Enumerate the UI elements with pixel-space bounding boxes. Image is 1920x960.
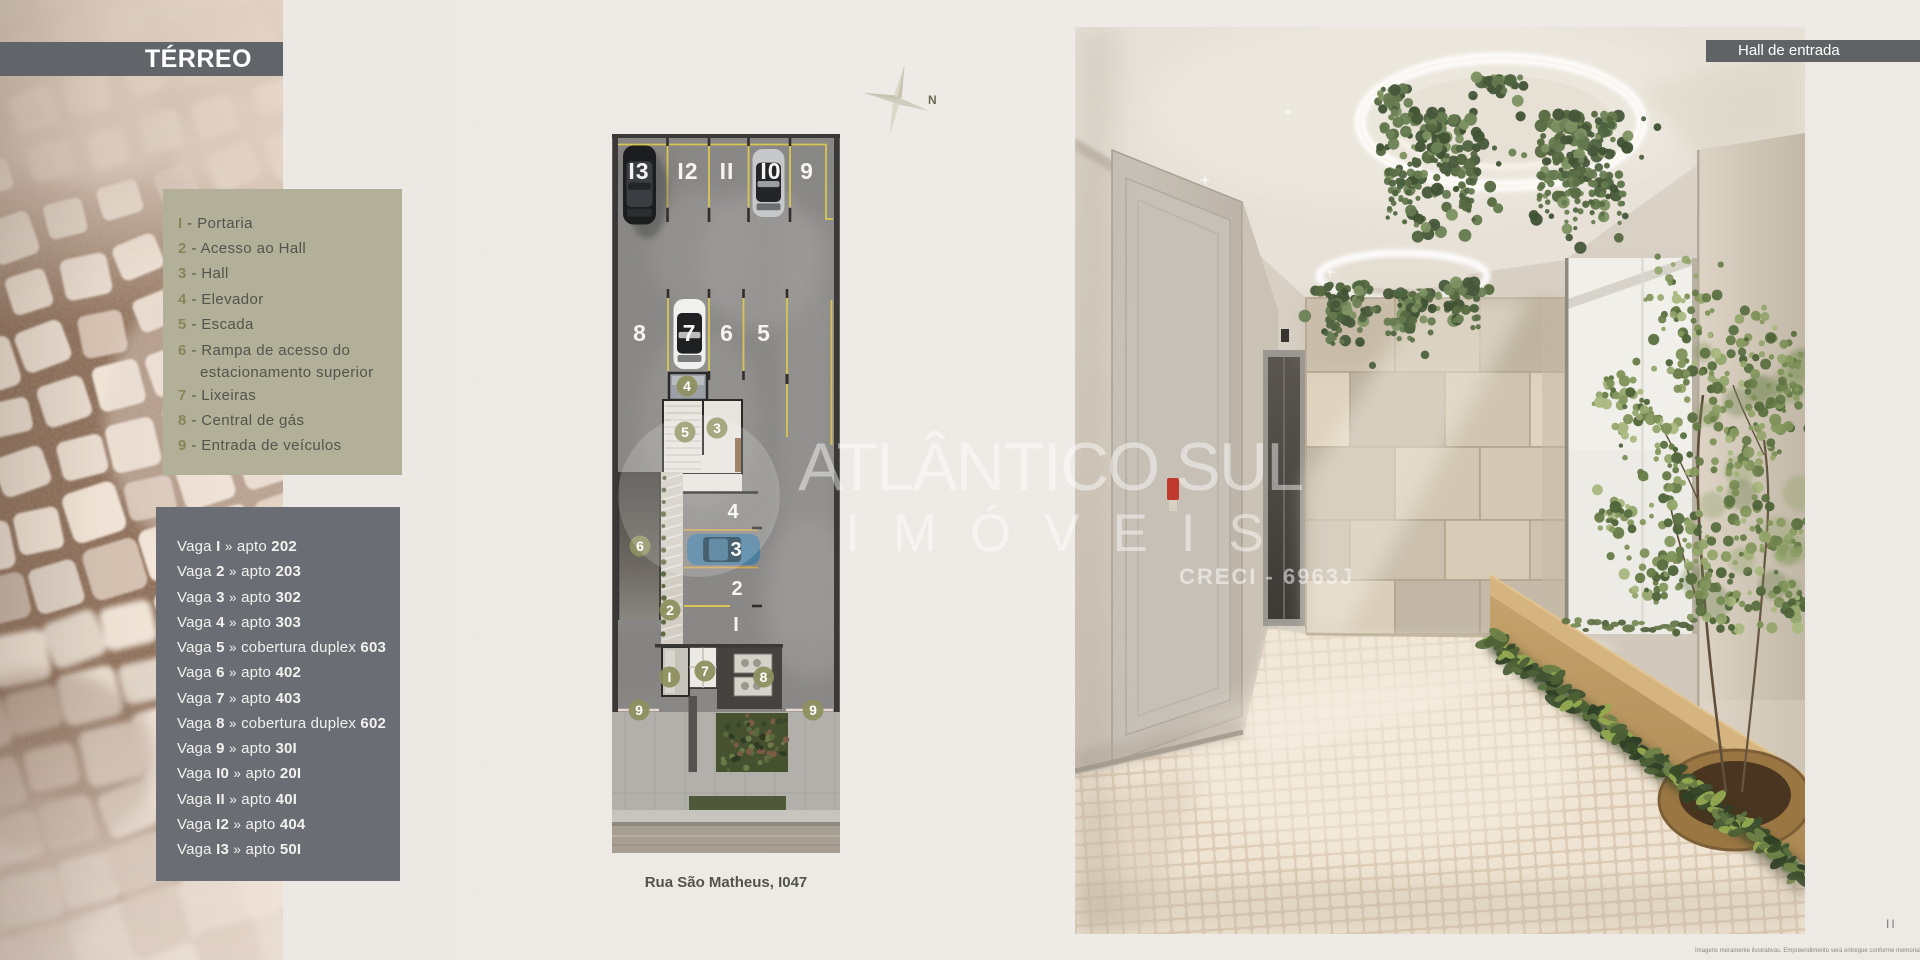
svg-text:5: 5 [757,320,771,346]
svg-text:2: 2 [731,578,742,600]
svg-text:9: 9 [809,702,817,718]
svg-text:7: 7 [701,663,709,679]
svg-text:I3: I3 [628,158,649,184]
svg-text:8: 8 [760,669,768,685]
svg-text:II: II [720,158,735,184]
svg-text:I: I [733,614,739,636]
svg-text:I2: I2 [677,158,698,184]
svg-text:9: 9 [800,158,814,184]
svg-text:6: 6 [720,320,734,346]
svg-text:N: N [928,93,937,107]
svg-text:I0: I0 [760,158,781,184]
svg-text:I: I [668,669,672,685]
svg-text:7: 7 [683,320,696,346]
svg-text:4: 4 [683,378,691,394]
svg-text:2: 2 [666,602,674,618]
svg-text:8: 8 [633,320,647,346]
svg-text:9: 9 [635,702,643,718]
